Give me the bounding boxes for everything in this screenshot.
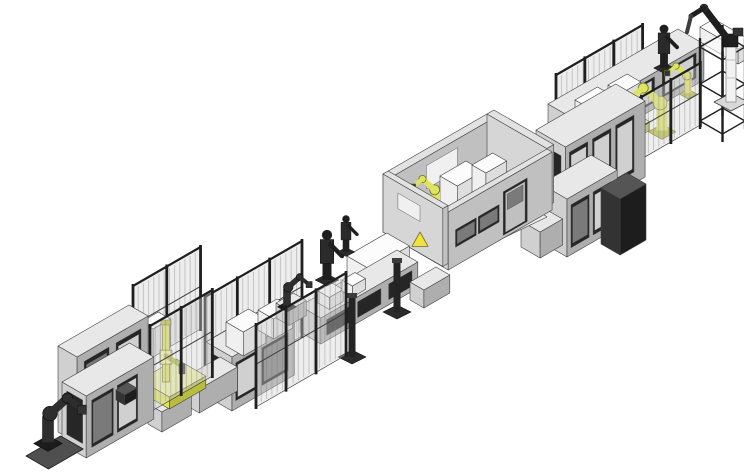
production-line-scene [0,0,744,475]
cabinet-dark-right [601,173,646,255]
robot-operator-mid-2 [337,215,357,256]
production-line-illustration [0,0,744,475]
